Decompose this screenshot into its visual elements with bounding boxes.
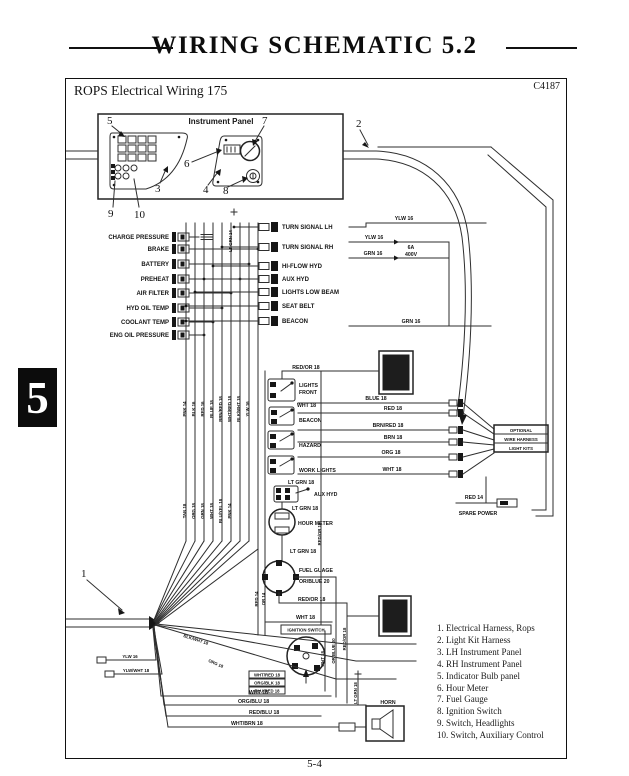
legend-item: 3. LH Instrument Panel: [437, 647, 565, 659]
callouts: 5 7 2 6 3 4 8 9 10 1: [81, 115, 369, 615]
wire-label: WHT 18: [296, 615, 315, 621]
svg-text:FUEL GUAGE: FUEL GUAGE: [299, 568, 333, 574]
indicator-row: ENG OIL PRESSURE: [110, 330, 206, 340]
wire-label: BRN/RED 18: [373, 423, 404, 429]
wire-label: RED 14: [254, 591, 259, 607]
optional-harness-box: OPTIONAL WIRE HARNESS LIGHT KITS: [494, 425, 548, 452]
svg-text:HI-FLOW HYD: HI-FLOW HYD: [282, 264, 323, 270]
svg-text:HAZARD: HAZARD: [299, 443, 321, 449]
wire-label: YLW 16: [122, 654, 138, 659]
wire-label: TAN 18: [182, 503, 187, 518]
wire-label: RED/OR 18: [317, 522, 322, 545]
hatch-boxes: [347, 351, 413, 636]
wire-label: ORG 18: [191, 503, 196, 519]
wire-label: OR/BLUE 20: [331, 638, 336, 664]
wire-label: GRN 16: [364, 251, 383, 257]
wire-label: ORG 18: [208, 658, 225, 669]
switch-column: RED/OR 18 LIGHTS FRONT WHT 18 BEACON: [268, 365, 379, 512]
chapter-tab: 5: [18, 368, 57, 427]
wire-label: LT GRN 18: [290, 549, 316, 555]
svg-text:LIGHTS LOW BEAM: LIGHTS LOW BEAM: [282, 290, 339, 296]
ignition-switch-icon: [247, 170, 260, 183]
horn: HORN: [366, 700, 404, 741]
wire-label: RED 16: [200, 401, 205, 417]
wire-label: RED 18: [384, 406, 402, 412]
svg-text:BEACON: BEACON: [299, 418, 322, 424]
wire-label: GRN 18: [200, 503, 205, 519]
indicator-row: COOLANT TEMP: [121, 317, 214, 327]
spare-power-label: SPARE POWER: [459, 511, 498, 517]
output-row: HI-FLOW HYD: [212, 261, 323, 271]
callout-1: 1: [81, 568, 87, 580]
callout-2: 2: [356, 118, 362, 130]
wire-label: ORG 18: [381, 450, 400, 456]
kit-wires: BLUE 18 RED 18 BRN/RED 18 BRN 18 ORG 18 …: [298, 396, 548, 517]
svg-text:BATTERY: BATTERY: [141, 262, 169, 268]
svg-text:CHARGE PRESSURE: CHARGE PRESSURE: [108, 235, 169, 241]
page-number: 5-4: [0, 758, 629, 770]
svg-text:FRONT: FRONT: [299, 390, 318, 396]
svg-text:ENG OIL PRESSURE: ENG OIL PRESSURE: [110, 333, 169, 339]
turn-signal-wires: YLW 16 YLW 16 GRN 16 6A 400V GRN 16: [349, 216, 491, 326]
indicator-rows: CHARGE PRESSURE BRAKE BATTERY PREHEAT: [108, 232, 259, 340]
legend-item: 1. Electrical Harness, Rops: [437, 623, 565, 635]
svg-text:WHT/RED 18: WHT/RED 18: [254, 672, 281, 677]
wire-label: YLW 16: [365, 235, 384, 241]
svg-text:PREHEAT: PREHEAT: [141, 277, 170, 283]
title-rule-left: [69, 47, 173, 49]
svg-text:COOLANT TEMP: COOLANT TEMP: [121, 320, 169, 326]
wire-label: BLU/YEL 18: [218, 498, 223, 523]
svg-text:WORK LIGHTS: WORK LIGHTS: [299, 468, 336, 474]
switch-work-lights: WORK LIGHTS: [268, 456, 336, 474]
wire-label: WHT/BRN 18: [231, 721, 263, 727]
legend-item: 10. Switch, Auxiliary Control: [437, 730, 565, 742]
legend-item: 9. Switch, Headlights: [437, 718, 565, 730]
switch-beacon: BEACON: [269, 407, 322, 425]
wire-label: PNK 14: [182, 401, 187, 417]
wire-label: LT GRN 18: [288, 480, 314, 486]
wire-label: BLK/WHT 18: [183, 633, 210, 646]
svg-text:AUX HYD: AUX HYD: [282, 277, 310, 283]
switch-lights-front: LIGHTS FRONT WHT 18: [268, 379, 319, 409]
wire-label: BRN 18: [384, 435, 403, 441]
fuel-gauge: FUEL GUAGE OR/BLUE 20 RED/OR 18: [262, 560, 347, 603]
wire-label: OR/BLUE 20: [299, 579, 330, 585]
callout-6: 6: [184, 158, 190, 170]
hour-meter-icon: [224, 145, 240, 154]
output-row: TURN SIGNAL RH: [221, 242, 334, 252]
callout-10: 10: [134, 209, 146, 221]
instrument-panel-label: Instrument Panel: [189, 117, 254, 126]
legend-item: 5. Indicator Bulb panel: [437, 671, 565, 683]
legend: 1. Electrical Harness, Rops 2. Light Kit…: [437, 623, 565, 742]
instrument-panel: Instrument Panel: [98, 114, 343, 199]
svg-text:HORN: HORN: [380, 700, 396, 706]
wire-label: RED/OR 18: [292, 365, 320, 371]
wire-label: WHT/RED 18: [227, 395, 232, 422]
svg-text:AIR FILTER: AIR FILTER: [136, 291, 169, 297]
indicator-row: AIR FILTER: [136, 288, 232, 298]
meters: HOUR METER LT GRN 18 FUEL GUAGE OR/BLUE …: [262, 502, 347, 603]
wire-label: ORG/BLU 18: [238, 699, 269, 705]
wire-label: WHT 18: [249, 690, 268, 696]
indicator-row: HYD OIL TEMP: [126, 303, 223, 313]
legend-item: 7. Fuel Gauge: [437, 694, 565, 706]
wire-label: RED/BLU 18: [249, 710, 279, 716]
wire-label: YLW/WHT 18: [123, 668, 150, 673]
wire-label: WHT 18: [209, 503, 214, 519]
wire-label: GRN 16: [402, 319, 421, 325]
output-row: LIGHTS LOW BEAM: [194, 287, 339, 297]
svg-text:TURN SIGNAL RH: TURN SIGNAL RH: [282, 245, 333, 251]
legend-item: 2. Light Kit Harness: [437, 635, 565, 647]
svg-text:ORG/BLK 18: ORG/BLK 18: [254, 680, 280, 685]
svg-text:HOUR METER: HOUR METER: [298, 521, 333, 527]
spare-power: RED 14 SPARE POWER: [456, 477, 517, 517]
wire-label: WHT 18: [382, 467, 401, 473]
switch-aux-hyd: LT GRN 18 AUX HYD LT GRN 18: [274, 480, 338, 512]
light-component-box: [371, 351, 413, 394]
output-row: BEACON: [185, 316, 308, 326]
manual-page: WIRING SCHEMATIC 5.2 5 ROPS Electrical W…: [0, 0, 629, 776]
svg-text:WIRE HARNESS: WIRE HARNESS: [504, 437, 538, 442]
callout-5: 5: [107, 115, 113, 127]
rops-frame: [378, 147, 553, 516]
output-row: AUX HYD: [203, 274, 310, 284]
wire-label: RED 14: [465, 495, 483, 501]
stub-wires: YLW 16 YLW/WHT 18: [97, 628, 162, 677]
wire-label: BLUE 18: [365, 396, 386, 402]
svg-text:SEAT BELT: SEAT BELT: [282, 304, 315, 310]
svg-text:LIGHT KITS: LIGHT KITS: [509, 446, 533, 451]
legend-item: 4. RH Instrument Panel: [437, 659, 565, 671]
wire-bundle: PNK 14 BLK 16 RED 16 BLUE 18 BRN/RED 18 …: [182, 209, 266, 635]
indicator-row: BATTERY: [141, 259, 250, 269]
callout-4: 4: [203, 184, 209, 196]
vertical-feeds: RED/OR 18 WHT 18 OR/BLUE 20 RED/OR 18: [317, 371, 347, 703]
output-rows: TURN SIGNAL LH TURN SIGNAL RH HI-FLOW HY…: [185, 222, 339, 326]
wire-label: OR 14: [261, 592, 266, 605]
wire-label: BLUE 18: [209, 400, 214, 418]
svg-text:OPTIONAL: OPTIONAL: [510, 428, 533, 433]
wire-label: LT GRN 14: [228, 230, 233, 252]
wire-label: LT GRN 18: [353, 682, 358, 704]
indicator-row: CHARGE PRESSURE: [108, 232, 213, 242]
svg-text:IGNITION SWITCH: IGNITION SWITCH: [287, 628, 324, 633]
schematic-frame: ROPS Electrical Wiring 175 C4187 Instrum…: [65, 78, 567, 759]
legend-item: 8. Ignition Switch: [437, 706, 565, 718]
switch-hazard: HAZARD: [268, 431, 321, 449]
light-component-box: [347, 596, 411, 636]
horn-circuit: WHT 18 ORG/BLU 18 RED/BLU 18 WHT/BRN 18 …: [161, 671, 404, 741]
fuel-gauge-icon: [241, 142, 260, 161]
wire-label: BLK 16: [191, 401, 196, 416]
svg-text:LIGHTS: LIGHTS: [299, 383, 319, 389]
svg-text:AUX HYD: AUX HYD: [314, 492, 338, 498]
title-rule-right: [506, 47, 577, 49]
wire-label: LT GRN 18: [292, 506, 318, 512]
svg-text:TURN SIGNAL LH: TURN SIGNAL LH: [282, 225, 333, 231]
wire-label: RED/OR 18: [342, 627, 347, 650]
wire-label: YLW 16: [395, 216, 414, 222]
output-row: TURN SIGNAL LH: [233, 222, 333, 232]
fuse-rating: 6A: [408, 245, 415, 251]
fuse-rating: 400V: [405, 252, 418, 258]
svg-text:BRAKE: BRAKE: [148, 247, 169, 253]
legend-item: 6. Hour Meter: [437, 683, 565, 695]
callout-7: 7: [262, 115, 268, 127]
wire-label: YLW 16: [245, 401, 250, 417]
callout-3: 3: [155, 183, 161, 195]
svg-text:HYD OIL TEMP: HYD OIL TEMP: [126, 306, 169, 312]
wire-label: BLK/WHT 18: [236, 396, 241, 422]
indicator-bulb-grid: [111, 136, 156, 180]
wire-label: PNK 14: [227, 503, 232, 519]
svg-text:BEACON: BEACON: [282, 319, 308, 325]
callout-9: 9: [108, 208, 114, 220]
wire-label: WHT 18: [297, 403, 316, 409]
wire-label: BRN/RED 18: [218, 396, 223, 422]
page-title: WIRING SCHEMATIC 5.2: [0, 32, 629, 60]
